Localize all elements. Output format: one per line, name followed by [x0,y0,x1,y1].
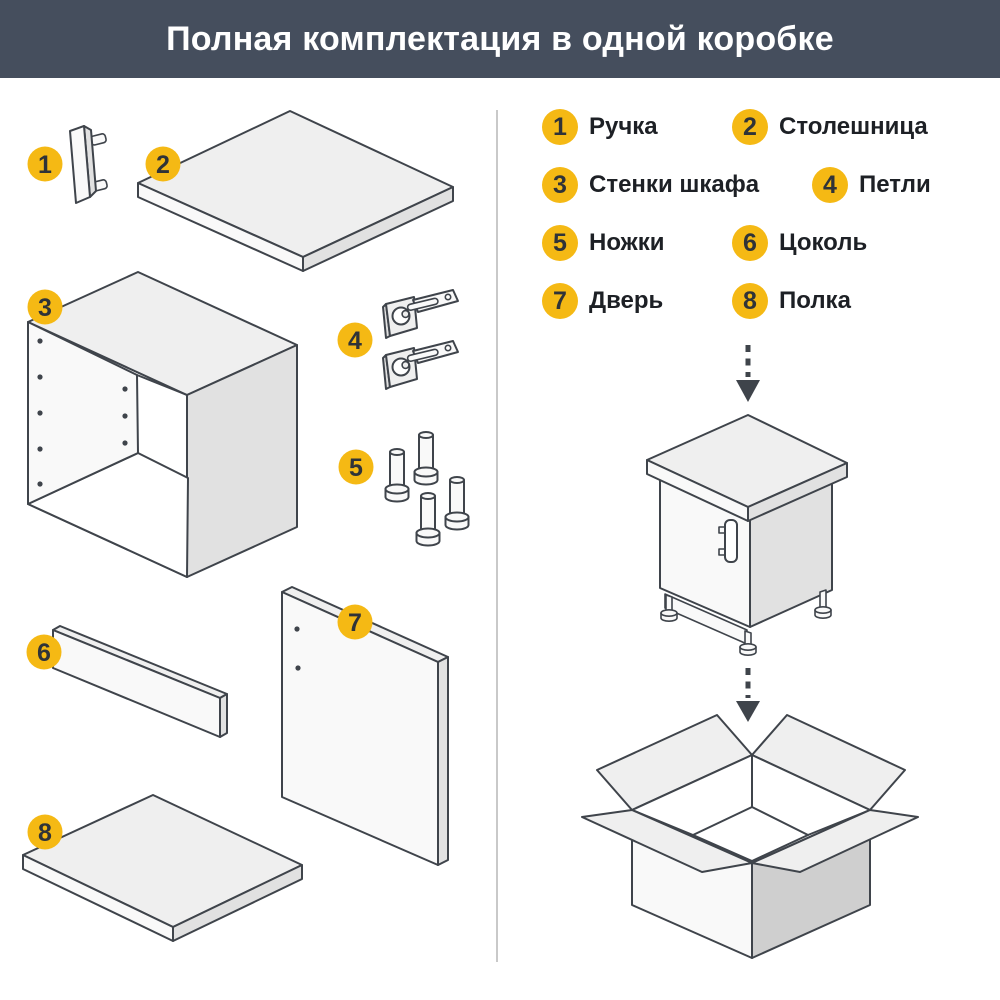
arrow-down-icon [736,345,760,402]
part-badge-1: 1 [28,147,63,182]
part-handle [70,126,108,203]
legend-label: Стенки шкафа [589,171,759,199]
part-hinges [383,290,458,389]
legend-item-door: 7 Дверь [542,283,663,319]
hinge-icon [383,341,458,389]
legend-label: Ножки [589,229,664,257]
legend-label: Столешница [779,113,928,141]
part-badge-3: 3 [28,290,63,325]
legend-item-shelf: 8 Полка [732,283,851,319]
legend-item-hinges: 4 Петли [812,167,931,203]
part-badge-7: 7 [338,605,373,640]
badge-number: 4 [348,327,362,355]
legend-badge-number: 4 [823,171,837,200]
leg-icon [417,493,440,546]
arrow-down-icon [736,668,760,722]
legend-label: Петли [859,171,931,199]
part-cabinet-frame [28,272,297,577]
legend-item-countertop: 2 Столешница [732,109,928,145]
legend-item-cabinet-walls: 3 Стенки шкафа [542,167,759,203]
badge-number: 1 [38,151,52,179]
legend-item-legs: 5 Ножки [542,225,664,261]
part-badge-6: 6 [27,635,62,670]
legend-badge: 5 [542,225,578,261]
legend-label: Дверь [589,287,663,315]
badge-number: 6 [37,639,51,667]
part-countertop [138,111,453,271]
part-badge-8: 8 [28,815,63,850]
hinge-icon [383,290,458,338]
legend-badge-number: 8 [743,287,757,316]
badge-number: 2 [156,151,170,179]
legend-badge-number: 6 [743,229,757,258]
legend-badge: 4 [812,167,848,203]
packaging-box [582,715,918,958]
leg-icon [415,432,438,485]
legend-badge: 3 [542,167,578,203]
diagram-canvas: 1 2 3 4 5 6 7 8 [0,0,1000,1000]
infographic-page: Полная комплектация в одной коробке [0,0,1000,1000]
leg-icon [386,449,409,502]
part-badge-4: 4 [338,323,373,358]
legend-label: Ручка [589,113,658,141]
legend-badge: 7 [542,283,578,319]
legend-badge-number: 3 [553,171,567,200]
badge-number: 3 [38,294,52,322]
part-plinth [53,626,227,737]
assembled-cabinet [647,415,847,655]
badge-number: 7 [348,609,362,637]
part-badge-5: 5 [339,450,374,485]
leg-icon [446,477,469,530]
legend-badge-number: 1 [553,113,567,142]
legend-item-handle: 1 Ручка [542,109,658,145]
legend-badge-number: 2 [743,113,757,142]
part-legs [386,432,469,546]
legend-item-plinth: 6 Цоколь [732,225,867,261]
legend-badge: 2 [732,109,768,145]
legend-badge-number: 5 [553,229,567,258]
legend-badge: 6 [732,225,768,261]
badge-number: 5 [349,454,363,482]
legend-label: Цоколь [779,229,867,257]
part-badge-2: 2 [146,147,181,182]
legend-label: Полка [779,287,851,315]
part-shelf [23,795,302,941]
legend-badge-number: 7 [553,287,567,316]
badge-number: 8 [38,819,52,847]
legend-badge: 8 [732,283,768,319]
legend-badge: 1 [542,109,578,145]
